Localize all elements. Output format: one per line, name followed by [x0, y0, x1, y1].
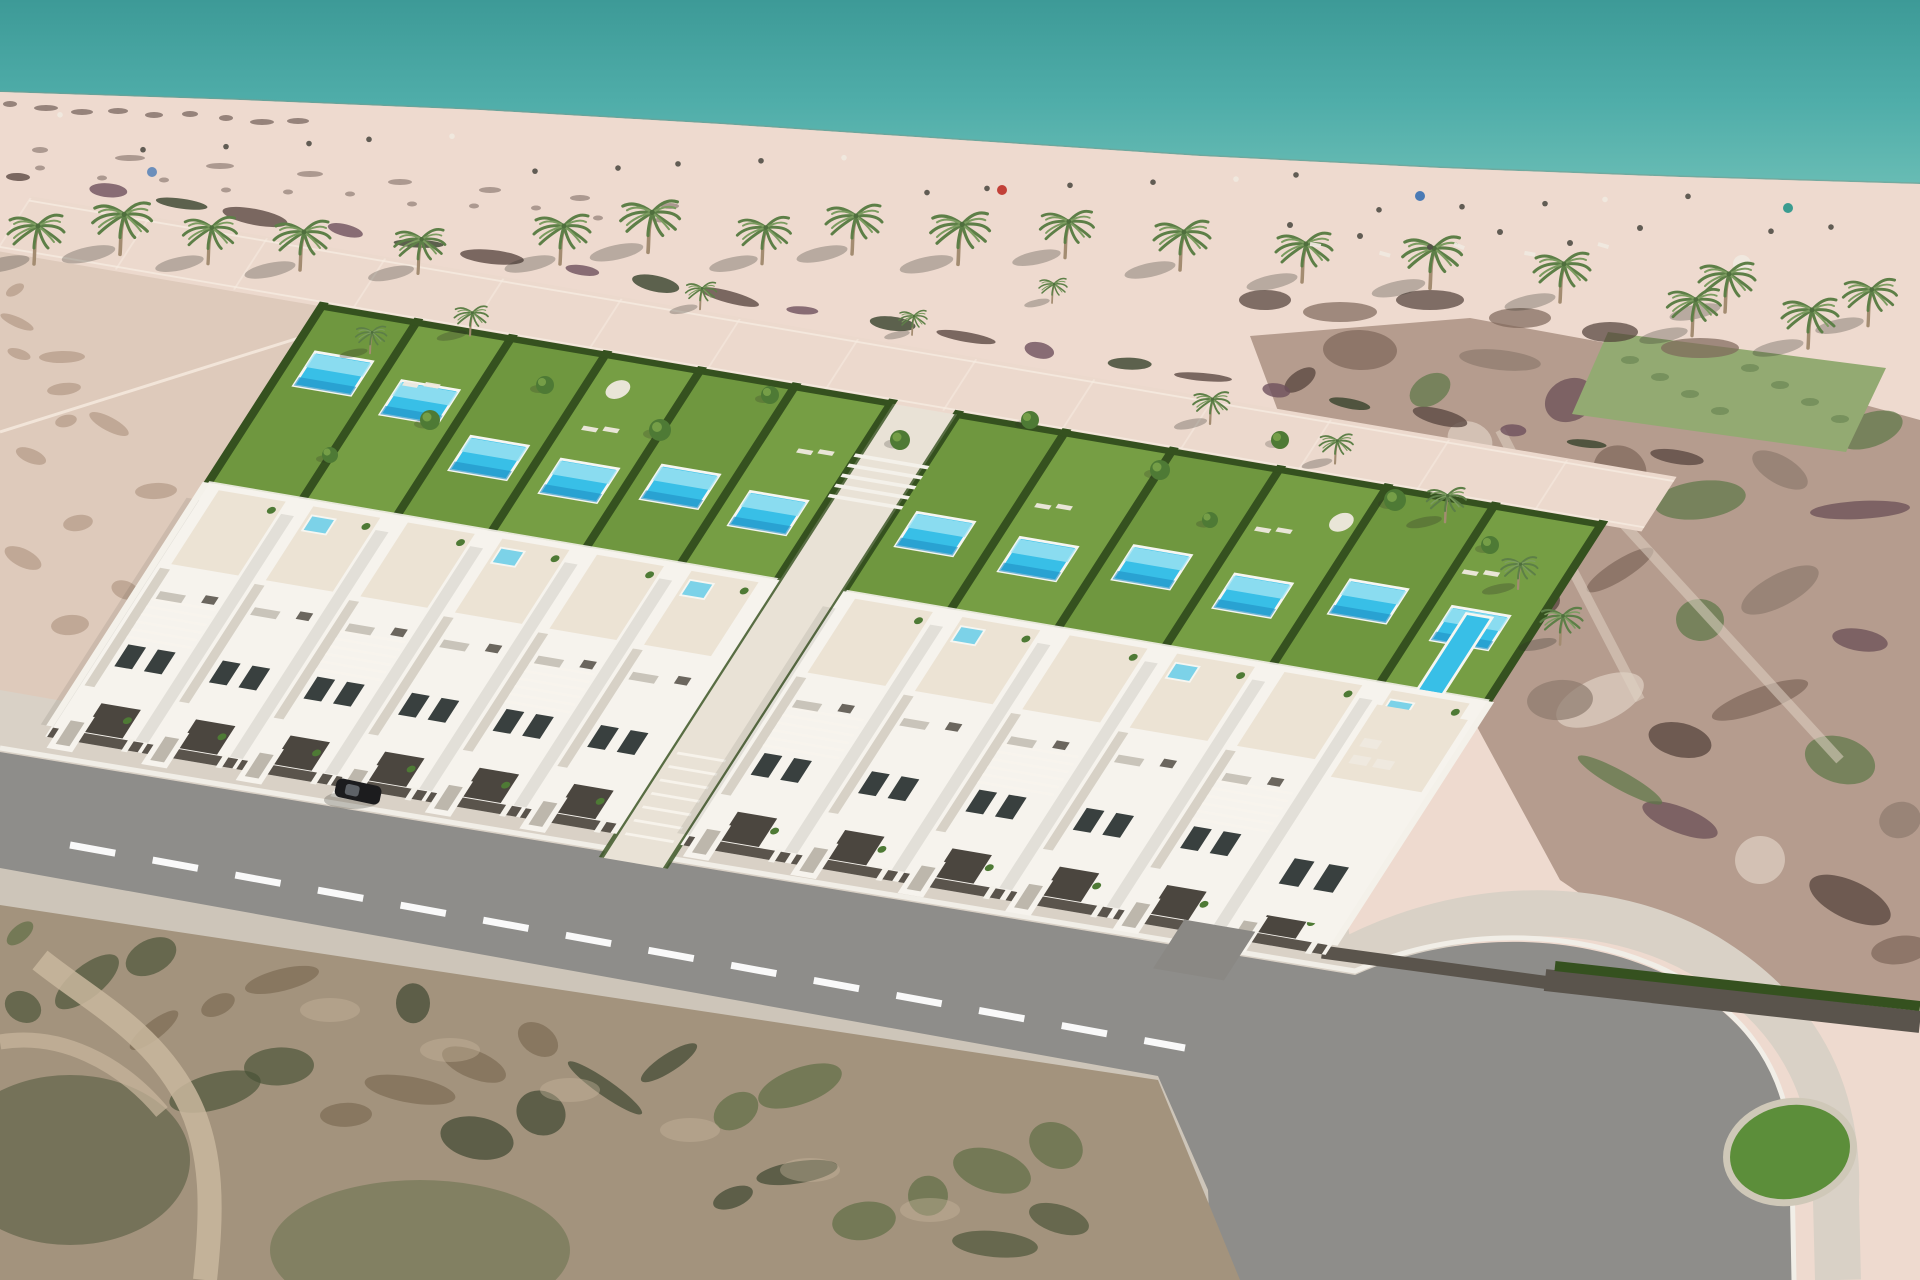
palm-crown — [1211, 398, 1214, 401]
palm-crown — [419, 237, 424, 242]
beach-speck — [345, 192, 355, 197]
palm-crown — [854, 214, 859, 219]
beach-person — [306, 141, 312, 147]
beach-person — [1768, 228, 1774, 234]
palm-crown — [701, 287, 704, 290]
palm-crown — [1053, 283, 1056, 286]
palm-crown — [122, 212, 127, 217]
beach-person — [1637, 225, 1643, 231]
palm-crown — [1561, 614, 1565, 618]
scrub-sand-patch — [420, 1038, 480, 1062]
beach-person — [758, 158, 764, 164]
scrub-sand-patch — [900, 1198, 960, 1222]
beach-person — [1150, 179, 1156, 185]
garden-tree-highlight — [1203, 513, 1210, 520]
garden-tree-highlight — [538, 378, 546, 386]
palm-crown — [1066, 219, 1071, 224]
blue-umbrella — [147, 167, 157, 177]
palm-crown — [1336, 439, 1339, 442]
beach-speck — [593, 216, 603, 221]
beach-speck — [407, 202, 417, 207]
palm-crown — [650, 210, 655, 215]
palm-crown — [1182, 230, 1187, 235]
garden-tree-highlight — [1483, 538, 1491, 546]
beach-person — [1542, 201, 1548, 207]
shore-rock — [71, 109, 93, 115]
shore-rock — [108, 108, 128, 114]
seaweed-clump — [388, 179, 412, 185]
garden-tree-highlight — [423, 413, 432, 422]
beach-person — [675, 161, 681, 167]
beach-person — [841, 155, 847, 161]
palm-crown — [1562, 262, 1567, 267]
garden-tree — [1202, 512, 1218, 528]
garden-tree-highlight — [1153, 463, 1162, 472]
palm-crown — [562, 224, 567, 229]
red-umbrella — [997, 185, 1007, 195]
beach-person — [1357, 233, 1363, 239]
beach-structure-blob — [1239, 290, 1291, 310]
garden-tree-highlight — [1273, 433, 1281, 441]
beach-person — [924, 190, 930, 196]
beach-person — [1293, 172, 1299, 178]
scrub-sand-patch — [300, 998, 360, 1022]
seaweed-clump — [115, 155, 145, 161]
beach-person — [1376, 207, 1382, 213]
beach-person — [223, 144, 229, 150]
shore-rock — [287, 118, 309, 124]
shore-rock — [3, 101, 17, 107]
beach-person — [1067, 182, 1073, 188]
lawn-dot — [1801, 398, 1819, 406]
palm-crown — [1519, 563, 1522, 566]
garden-tree-highlight — [1387, 492, 1397, 502]
palm-crown — [36, 224, 41, 229]
palm-crown — [1304, 242, 1309, 247]
lawn-dot — [1651, 373, 1669, 381]
lawn-dot — [1831, 415, 1849, 423]
lawn-dot — [1771, 381, 1789, 389]
palm-crown — [960, 222, 965, 227]
palm-crown — [371, 331, 374, 334]
palm-crown — [763, 225, 768, 230]
beach-person — [532, 168, 538, 174]
beach-person — [1828, 224, 1834, 230]
beach-person — [1602, 197, 1608, 203]
palm-crown — [1727, 272, 1732, 277]
lawn-dot — [1681, 390, 1699, 398]
palm-crown — [209, 225, 214, 230]
garden-tree — [1481, 536, 1499, 554]
beach-person — [140, 147, 146, 153]
beach-speck — [159, 178, 169, 183]
beach-person — [1459, 204, 1465, 210]
teal-umbrella — [1783, 203, 1793, 213]
garden-tree-highlight — [893, 433, 902, 442]
seaweed-clump — [479, 187, 501, 193]
garden-tree — [1271, 431, 1289, 449]
palm-crown — [302, 230, 307, 235]
palm-crown — [1869, 287, 1874, 292]
shore-rock — [145, 112, 163, 118]
garden-tree — [761, 386, 779, 404]
palm-crown — [1810, 308, 1815, 313]
garden-tree — [322, 447, 338, 463]
beach-structure-blob — [1303, 302, 1377, 322]
seaweed-clump — [206, 163, 234, 169]
beach-speck — [97, 176, 107, 181]
lawn-dot — [1621, 356, 1639, 364]
garden-tree — [536, 376, 554, 394]
beach-person — [1497, 229, 1503, 235]
beach-person — [1233, 176, 1239, 182]
beach-person — [615, 165, 621, 171]
beach-person — [366, 137, 372, 143]
beach-structure-blob — [1661, 338, 1739, 358]
beach-speck — [531, 206, 541, 211]
lawn-dot — [1741, 364, 1759, 372]
beach-person — [449, 133, 455, 139]
scrub-sand-patch — [660, 1118, 720, 1142]
lawn-dot — [1711, 407, 1729, 415]
garden-tree-highlight — [1023, 413, 1031, 421]
seaweed-clump — [570, 195, 590, 201]
beach-person — [1287, 222, 1293, 228]
blue-umbrella — [1415, 191, 1425, 201]
palm-crown — [1693, 297, 1698, 302]
beach-speck — [35, 166, 45, 171]
palm-crown — [471, 311, 474, 314]
shore-rock — [219, 115, 233, 121]
palm-crown — [913, 315, 916, 318]
beach-speck — [221, 188, 231, 193]
beach-person — [1567, 240, 1573, 246]
scrub-sand-patch — [780, 1158, 840, 1182]
beach-person — [1427, 244, 1433, 250]
beach-person — [57, 112, 63, 118]
seaweed-clump — [297, 171, 323, 177]
beach-speck — [283, 190, 293, 195]
beach-person — [1685, 194, 1691, 200]
garden-tree — [1021, 411, 1039, 429]
beach-structure-blob — [1582, 322, 1638, 342]
garden-tree-highlight — [652, 422, 662, 432]
beach-structure-blob — [1489, 308, 1551, 328]
shore-rock — [182, 111, 198, 117]
aerial-render-scene — [0, 0, 1920, 1280]
garden-tree-highlight — [323, 448, 330, 455]
scrub-sand-patch — [540, 1078, 600, 1102]
beach-person — [984, 186, 990, 192]
seaweed-clump — [32, 147, 48, 153]
palm-crown — [1446, 494, 1450, 498]
shore-rock — [34, 105, 58, 111]
shore-rock — [250, 119, 274, 125]
garden-tree-highlight — [763, 388, 771, 396]
beach-speck — [469, 204, 479, 209]
